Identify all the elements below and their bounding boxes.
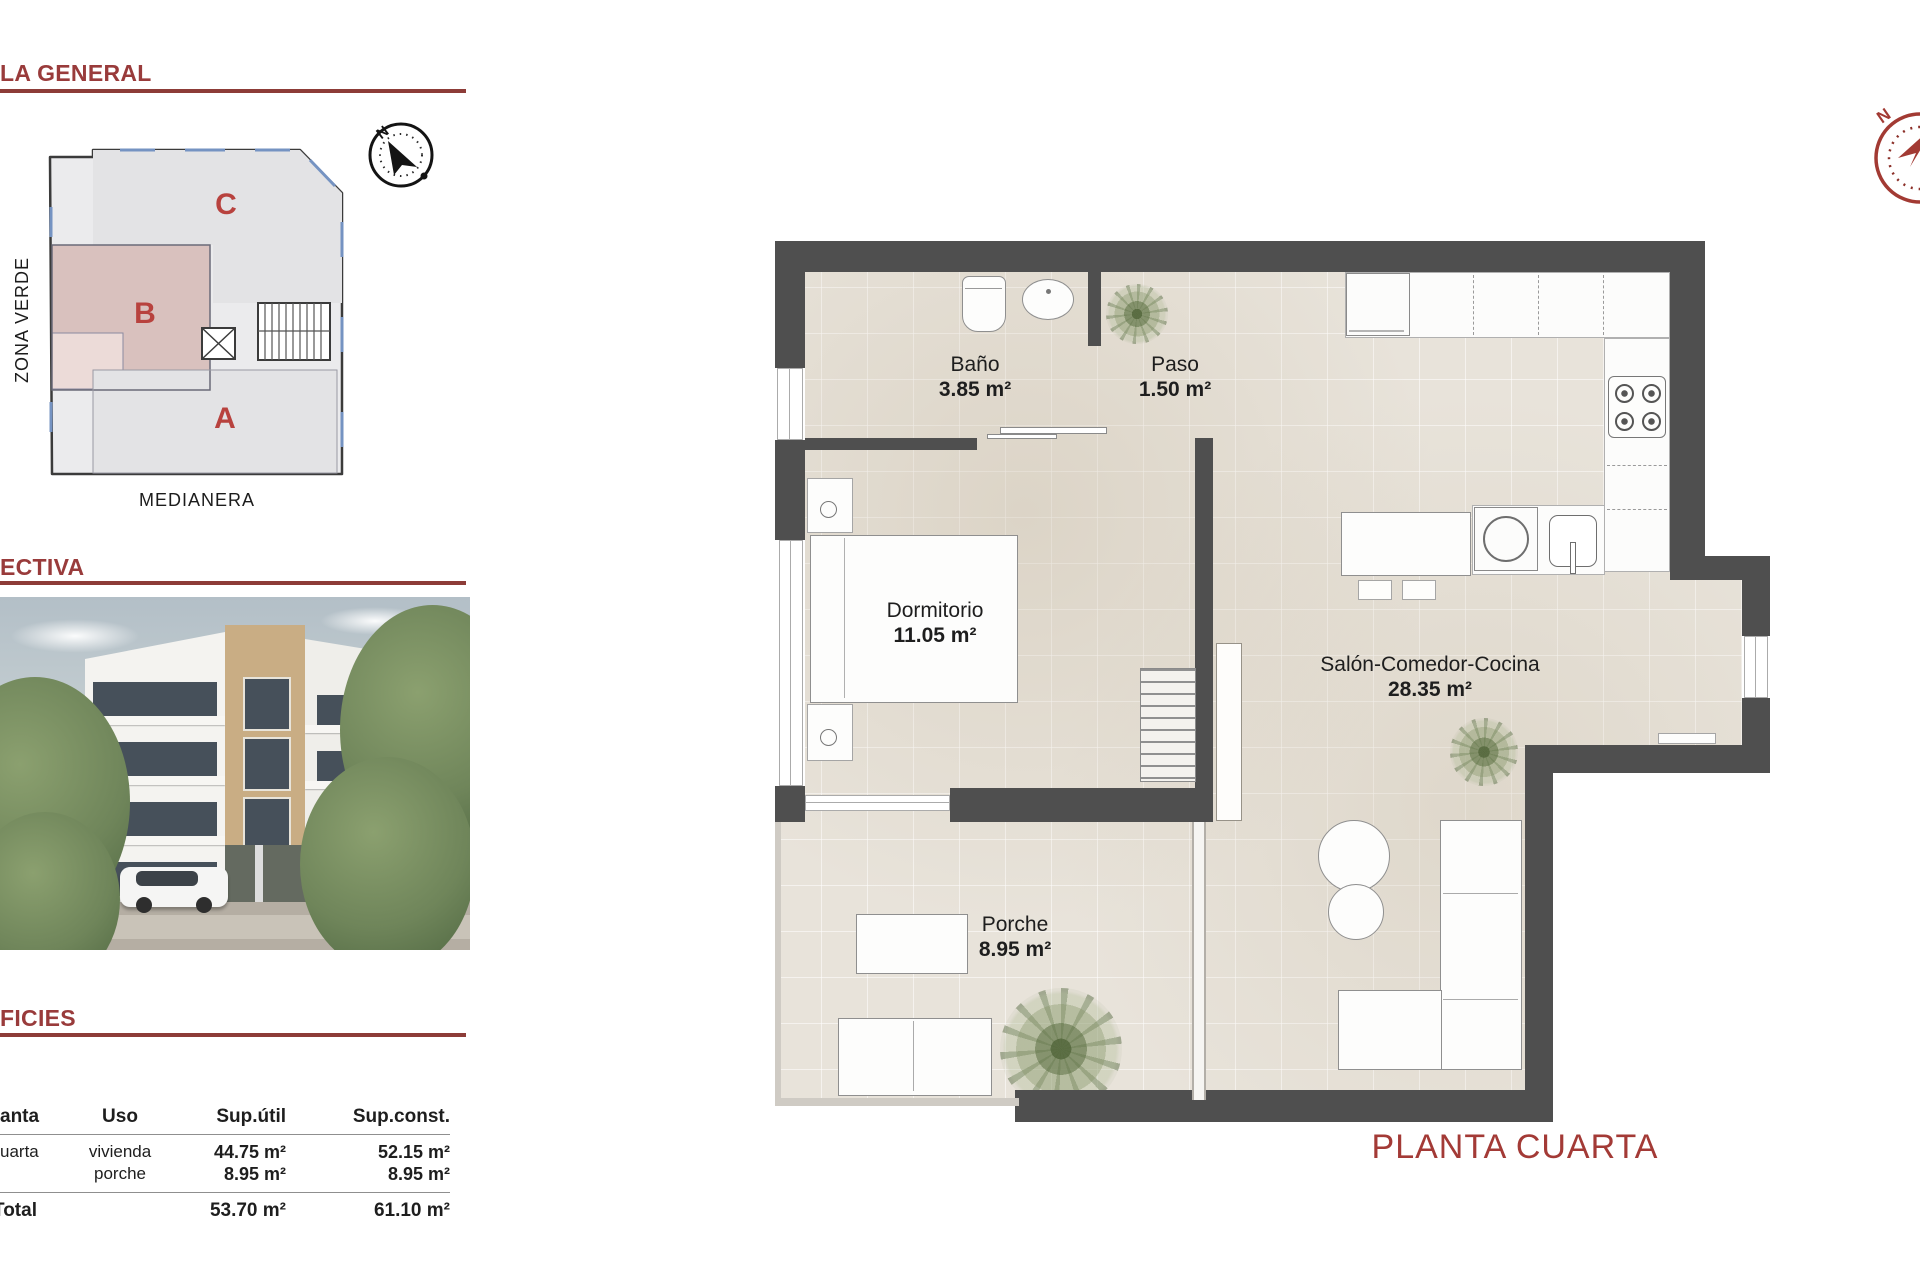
wall-segment <box>1670 272 1705 556</box>
site-zone-a-label: A <box>214 402 236 435</box>
round-chair <box>1328 884 1384 940</box>
cell-util-1: 44.75 m² <box>178 1141 286 1163</box>
nightstand <box>807 478 853 533</box>
plan-title: PLANTA CUARTA <box>1330 1128 1700 1167</box>
cell-const-2: 8.95 m² <box>286 1163 450 1185</box>
kitchen-island <box>1472 505 1605 575</box>
wall-segment <box>1525 745 1553 1122</box>
room-name: Dormitorio <box>855 598 1015 623</box>
kitchen-counter-right <box>1604 338 1670 572</box>
table-header-row: anta Uso Sup.útil Sup.const. <box>0 1106 450 1128</box>
kitchen-counter-top <box>1345 272 1670 338</box>
room-label-porche: Porche 8.95 m² <box>955 912 1075 962</box>
room-area: 28.35 m² <box>1290 677 1570 702</box>
cell-const-1: 52.15 m² <box>286 1141 450 1163</box>
porche-sunbed <box>838 1018 992 1096</box>
cell-util-2: 8.95 m² <box>178 1163 286 1185</box>
room-name: Baño <box>900 352 1050 377</box>
room-label-salon: Salón-Comedor-Cocina 28.35 m² <box>1290 652 1570 702</box>
section-title-planta-general: LA GENERAL <box>0 60 152 87</box>
medianera-label: MEDIANERA <box>139 490 255 510</box>
wall-segment <box>775 241 1705 272</box>
total-sup-util: 53.70 m² <box>178 1200 286 1222</box>
col-header-planta: anta <box>0 1106 62 1128</box>
total-sup-const: 61.10 m² <box>286 1200 450 1222</box>
room-label-dormitorio: Dormitorio 11.05 m² <box>855 598 1015 648</box>
toilet-icon <box>962 276 1006 332</box>
wall-segment <box>775 786 805 822</box>
wall-segment <box>1088 272 1101 346</box>
room-name: Porche <box>955 912 1075 937</box>
fridge-icon <box>1346 273 1410 336</box>
plant-icon <box>1106 284 1168 344</box>
table-total-row: Total 53.70 m² 61.10 m² <box>0 1200 450 1222</box>
sofa-chaise <box>1338 990 1442 1070</box>
glass-partition <box>1192 822 1206 1100</box>
wall-segment <box>805 438 977 450</box>
stool <box>1402 580 1436 600</box>
room-label-bano: Baño 3.85 m² <box>900 352 1050 402</box>
wall-segment <box>1553 745 1770 773</box>
stove-icon <box>1608 376 1666 438</box>
section-underline <box>0 89 466 93</box>
nightstand <box>807 704 853 761</box>
shaft-hatch <box>1140 668 1196 782</box>
dining-table <box>1341 512 1471 576</box>
door-leaf <box>1216 643 1242 821</box>
cloud <box>10 619 140 653</box>
wall-segment <box>950 788 1213 822</box>
sofa <box>1440 820 1522 1070</box>
washing-machine-icon <box>1474 507 1538 571</box>
table-row: uarta vivienda porche 44.75 m² 8.95 m² 5… <box>0 1141 450 1185</box>
room-name: Salón-Comedor-Cocina <box>1290 652 1570 677</box>
plan-compass-icon: N <box>1856 96 1920 226</box>
room-name: Paso <box>1100 352 1250 377</box>
section-underline <box>0 1033 466 1037</box>
site-zone-c-label: C <box>215 188 237 221</box>
col-header-uso: Uso <box>62 1106 178 1128</box>
room-area: 1.50 m² <box>1100 377 1250 402</box>
cell-uso-1: vivienda <box>62 1141 178 1163</box>
building-rendering <box>0 597 470 950</box>
section-title-superficies: FICIES <box>0 1005 76 1032</box>
col-header-sup-util: Sup.útil <box>178 1106 286 1128</box>
zona-verde-label: ZONA VERDE <box>12 257 32 383</box>
porche-railing <box>775 822 781 1106</box>
total-label: Total <box>0 1200 62 1222</box>
wall-segment <box>1015 1090 1553 1122</box>
site-stairs-icon <box>258 303 330 360</box>
site-compass-icon: N <box>370 123 432 186</box>
cell-uso-2: porche <box>62 1163 178 1185</box>
wall-segment <box>775 440 805 540</box>
render-car <box>120 867 228 907</box>
sliding-door <box>1000 427 1107 434</box>
plant-icon <box>1450 718 1518 786</box>
section-underline <box>0 581 466 585</box>
room-label-paso: Paso 1.50 m² <box>1100 352 1250 402</box>
stool <box>1358 580 1392 600</box>
room-area: 11.05 m² <box>855 623 1015 648</box>
col-header-sup-const: Sup.const. <box>286 1106 450 1128</box>
site-plan-diagram: C B A ZONA VERDE MEDIANERA N <box>0 112 440 514</box>
cell-sup-util: 44.75 m² 8.95 m² <box>178 1141 286 1185</box>
table-divider <box>0 1192 450 1193</box>
site-zone-b-label: B <box>134 297 156 330</box>
round-table <box>1318 820 1390 892</box>
tv-bench <box>1658 733 1716 744</box>
window <box>779 540 803 786</box>
table-divider <box>0 1134 450 1135</box>
room-area: 8.95 m² <box>955 937 1075 962</box>
porche-table <box>856 914 968 974</box>
porche-railing <box>775 1098 1019 1106</box>
wall-segment <box>1195 438 1213 788</box>
section-title-perspectiva: ECTIVA <box>0 554 84 581</box>
page: { "colors": { "accent_red": "#993b3b", "… <box>0 0 1920 1280</box>
cell-sup-const: 52.15 m² 8.95 m² <box>286 1141 450 1185</box>
window <box>1744 636 1768 698</box>
wall-segment <box>775 241 805 368</box>
window <box>777 368 803 440</box>
faucet-icon <box>1570 542 1576 574</box>
room-area: 3.85 m² <box>900 377 1050 402</box>
window <box>805 795 950 811</box>
wall-segment <box>1742 580 1770 636</box>
sink-icon <box>1022 279 1074 320</box>
cell-planta: uarta <box>0 1141 62 1185</box>
site-elevator-icon <box>202 328 235 359</box>
wall-segment <box>1670 556 1770 580</box>
cell-uso: vivienda porche <box>62 1141 178 1185</box>
